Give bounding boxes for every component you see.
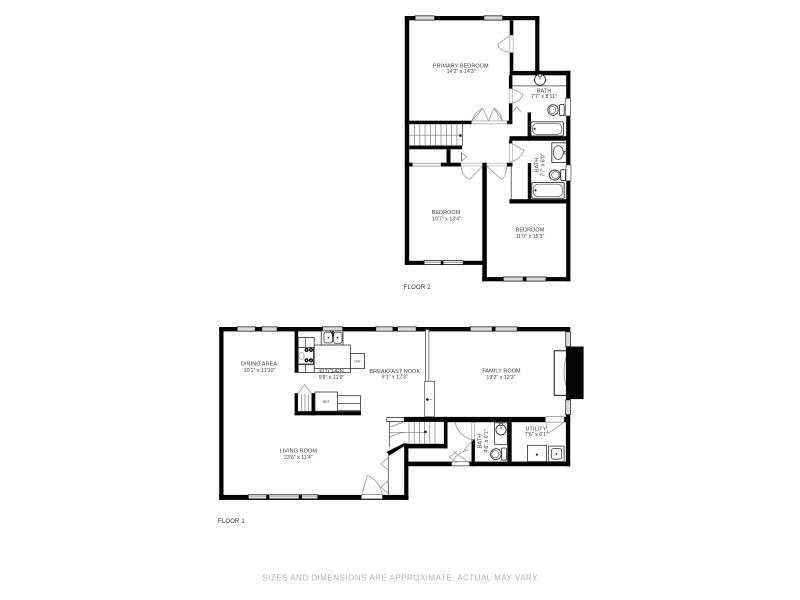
svg-text:DINING AREA: DINING AREA <box>241 362 277 368</box>
svg-text:FLOOR 1: FLOOR 1 <box>218 519 245 525</box>
svg-text:10'7" x 13'4": 10'7" x 13'4" <box>432 217 461 223</box>
svg-text:14'2" x 14'3": 14'2" x 14'3" <box>447 69 476 75</box>
svg-text:LIVING ROOM: LIVING ROOM <box>280 448 318 454</box>
svg-text:19'2" x 12'3": 19'2" x 12'3" <box>486 375 515 381</box>
svg-text:FAMILY ROOM: FAMILY ROOM <box>482 368 521 374</box>
svg-text:7'7" x 8'11": 7'7" x 8'11" <box>531 94 557 100</box>
svg-text:7'6" x 6'1": 7'6" x 6'1" <box>525 432 548 438</box>
svg-text:23'6" x 11'4": 23'6" x 11'4" <box>284 455 313 461</box>
svg-text:9'9" x 11'9": 9'9" x 11'9" <box>319 375 345 381</box>
svg-text:10'1" x 11'10": 10'1" x 11'10" <box>244 368 276 374</box>
svg-text:BATH: BATH <box>477 434 483 449</box>
svg-text:BEDROOM: BEDROOM <box>516 228 545 234</box>
svg-text:11'0" x 15'3": 11'0" x 15'3" <box>516 234 545 240</box>
svg-text:BEDROOM: BEDROOM <box>432 210 461 216</box>
svg-text:DW: DW <box>354 359 361 363</box>
svg-text:REF: REF <box>323 400 331 404</box>
svg-text:7'7" x 8'0": 7'7" x 8'0" <box>541 153 547 176</box>
svg-text:SIZES AND DIMENSIONS ARE APPRO: SIZES AND DIMENSIONS ARE APPROXIMATE, AC… <box>262 574 539 583</box>
svg-text:4'6" x 6'1": 4'6" x 6'1" <box>484 429 490 452</box>
svg-text:9'1" x 12'3": 9'1" x 12'3" <box>382 374 408 380</box>
svg-text:FLOOR 2: FLOOR 2 <box>404 285 431 291</box>
svg-text:BATH: BATH <box>534 158 540 173</box>
